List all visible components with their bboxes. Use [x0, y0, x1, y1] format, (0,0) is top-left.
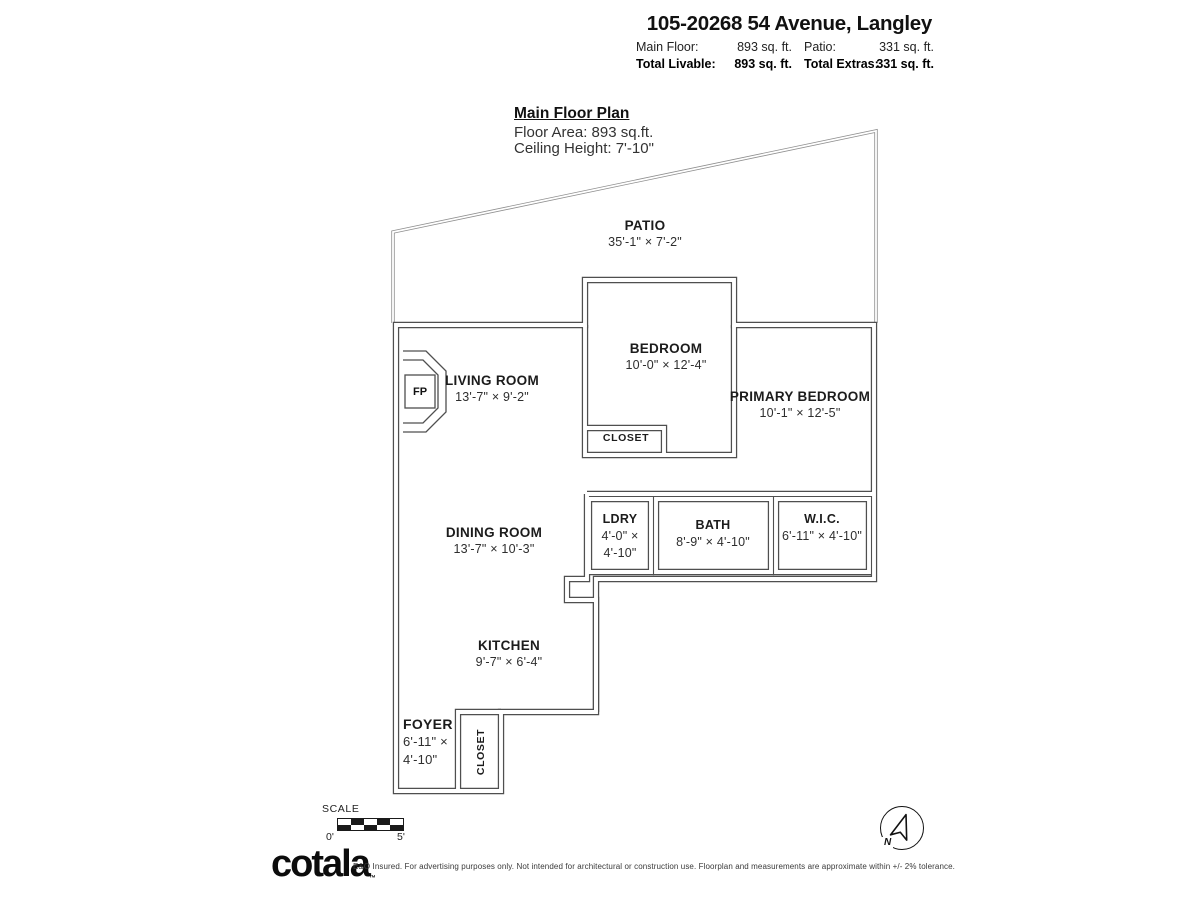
- laundry-label: LDRY 4'-0" × 4'-10": [601, 511, 638, 562]
- kitchen-dims: 9'-7" × 6'-4": [476, 654, 543, 671]
- scale-five-label: 5': [397, 831, 405, 843]
- kitchen-name: KITCHEN: [476, 637, 543, 654]
- scale-segment: [351, 825, 364, 831]
- living-room-name: LIVING ROOM: [445, 372, 539, 389]
- patio-dims: 35'-1" × 7'-2": [608, 234, 682, 251]
- wic-label: W.I.C. 6'-11" × 4'-10": [782, 511, 862, 545]
- dining-room-dims: 13'-7" × 10'-3": [446, 541, 542, 558]
- living-room-label: LIVING ROOM 13'-7" × 9'-2": [445, 372, 539, 406]
- disclaimer-text: E&O Insured. For advertising purposes on…: [353, 862, 955, 871]
- scale-segment: [377, 825, 390, 831]
- dining-room-label: DINING ROOM 13'-7" × 10'-3": [446, 524, 542, 558]
- wic-name: W.I.C.: [782, 511, 862, 528]
- primary-bedroom-name: PRIMARY BEDROOM: [730, 388, 870, 405]
- scale-bar: [337, 818, 404, 831]
- living-room-dims: 13'-7" × 9'-2": [445, 389, 539, 406]
- scale-segment: [338, 825, 351, 831]
- dining-room-name: DINING ROOM: [446, 524, 542, 541]
- bedroom-closet-label: CLOSET: [603, 432, 649, 444]
- bath-name: BATH: [676, 517, 750, 534]
- kitchen-label: KITCHEN 9'-7" × 6'-4": [476, 637, 543, 671]
- scale-zero-label: 0': [326, 831, 334, 843]
- scale-segment: [390, 825, 403, 831]
- laundry-dims-line1: 4'-0" ×: [601, 528, 638, 545]
- patio-name: PATIO: [608, 217, 682, 234]
- bedroom-name: BEDROOM: [626, 340, 707, 357]
- bedroom-label: BEDROOM 10'-0" × 12'-4": [626, 340, 707, 374]
- compass-north-label: N: [882, 837, 893, 848]
- compass-icon: N: [880, 806, 924, 850]
- fireplace-label: FP: [413, 386, 427, 398]
- patio-label: PATIO 35'-1" × 7'-2": [608, 217, 682, 251]
- floor-plan-drawing: [0, 0, 1200, 900]
- primary-bedroom-dims: 10'-1" × 12'-5": [730, 405, 870, 422]
- bath-label: BATH 8'-9" × 4'-10": [676, 517, 750, 551]
- foyer-label: FOYER 6'-11" × 4'-10": [403, 716, 453, 769]
- foyer-dims-line1: 6'-11" ×: [403, 733, 453, 751]
- scale-title: SCALE: [322, 803, 359, 815]
- laundry-dims-line2: 4'-10": [601, 545, 638, 562]
- scale-segment: [364, 825, 377, 831]
- foyer-name: FOYER: [403, 716, 453, 733]
- logo-trademark: ™: [369, 875, 376, 882]
- wic-dims: 6'-11" × 4'-10": [782, 528, 862, 545]
- bedroom-dims: 10'-0" × 12'-4": [626, 357, 707, 374]
- foyer-closet-label: CLOSET: [475, 729, 487, 775]
- primary-bedroom-label: PRIMARY BEDROOM 10'-1" × 12'-5": [730, 388, 870, 422]
- bath-dims: 8'-9" × 4'-10": [676, 534, 750, 551]
- foyer-dims-line2: 4'-10": [403, 751, 453, 769]
- floorplan-page: 105-20268 54 Avenue, Langley Main Floor:…: [0, 0, 1200, 900]
- laundry-name: LDRY: [601, 511, 638, 528]
